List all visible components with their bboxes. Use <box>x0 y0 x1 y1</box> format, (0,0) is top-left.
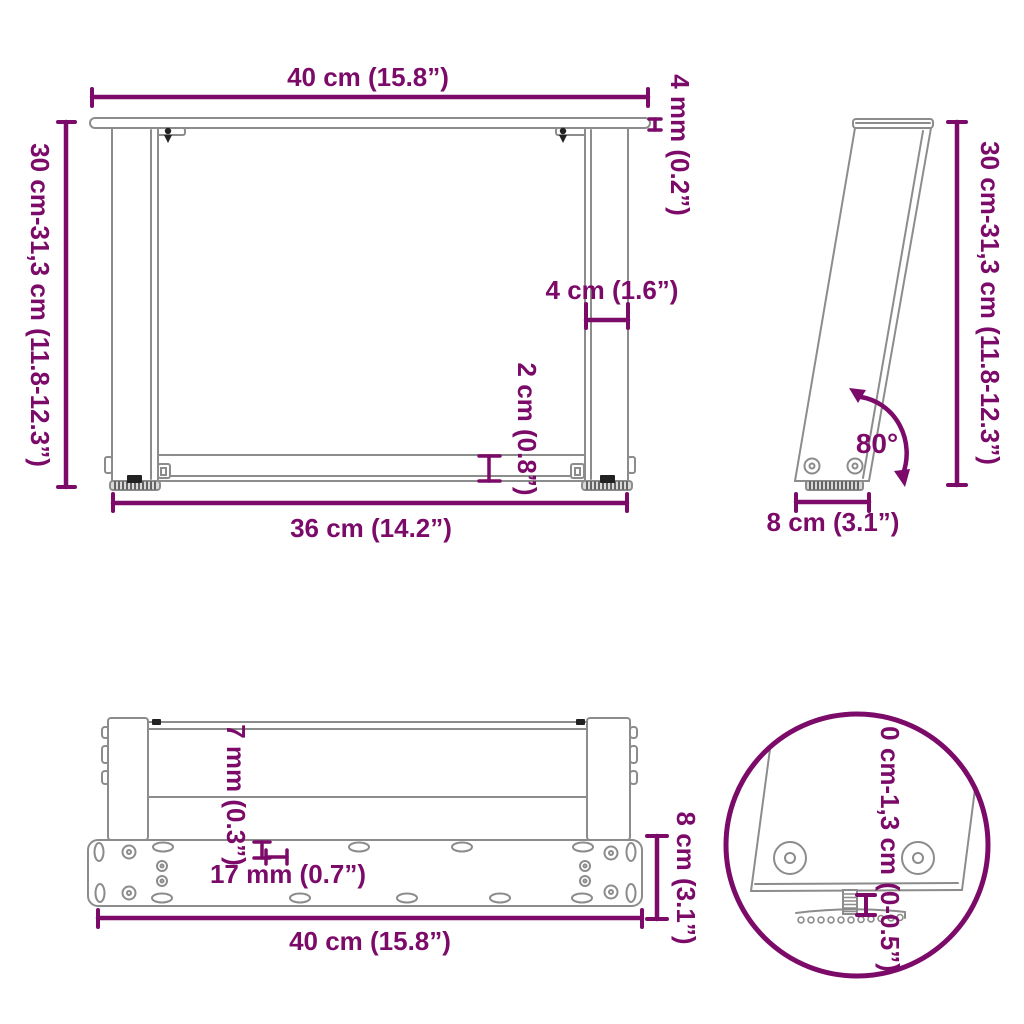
front-top-thickness-label: 4 mm (0.2”) <box>665 74 695 216</box>
detail-leg-left-edge <box>751 749 770 891</box>
detail-adjust-range-marker <box>857 895 875 915</box>
front-bottom-width-dim <box>113 494 627 511</box>
front-bottom-width-label: 36 cm (14.2”) <box>290 513 452 543</box>
front-right-foot-adjuster <box>600 475 615 483</box>
detail-leg-right-edge <box>962 789 975 890</box>
diagram-svg: 40 cm (15.8”) 30 cm-31,3 cm (11.8-12.3”)… <box>0 0 1024 1024</box>
plan-left-screw-icon <box>152 719 161 725</box>
detail-screw-hole-right <box>902 842 934 874</box>
side-screw-hole-left <box>805 459 820 474</box>
detail-magnifier-circle <box>726 714 988 976</box>
front-left-screw-icon <box>165 128 171 134</box>
plan-width-label: 40 cm (15.8”) <box>289 926 451 956</box>
angle-arrow-down-icon <box>894 469 910 487</box>
front-left-side-clip <box>105 457 112 473</box>
side-angle-label: 80° <box>856 428 898 459</box>
front-left-foot-adjuster <box>127 475 142 483</box>
dimension-diagram: 40 cm (15.8”) 30 cm-31,3 cm (11.8-12.3”)… <box>0 0 1024 1024</box>
front-right-screw-tip <box>559 135 567 143</box>
front-right-screw-icon <box>560 128 566 134</box>
side-height-dim <box>948 122 966 485</box>
plan-right-screw-icon <box>576 719 585 725</box>
front-right-side-clip <box>628 457 635 473</box>
front-height-dim <box>58 122 75 487</box>
front-bar-height-label: 2 cm (0.8”) <box>512 363 542 496</box>
detail-screw-hole-left <box>774 842 806 874</box>
front-top-width-label: 40 cm (15.8”) <box>287 62 449 92</box>
plan-width-dim <box>98 910 642 927</box>
side-screw-hole-right <box>848 459 863 474</box>
detail-adjust-range-label: 0 cm-1,3 cm (0-0.5”) <box>875 726 905 972</box>
plan-right-tab-3 <box>630 771 637 784</box>
detail-leg-inner-edge <box>755 883 958 884</box>
front-tabletop <box>90 118 650 128</box>
plan-left-leg <box>108 718 148 840</box>
plan-edge-thickness-label: 7 mm (0.3”) <box>221 724 251 866</box>
front-height-label: 30 cm-31,3 cm (11.8-12.3”) <box>25 143 55 467</box>
side-foot-width-label: 8 cm (3.1”) <box>767 507 900 537</box>
front-left-screw-tip <box>164 135 172 143</box>
front-leg-width-label: 4 cm (1.6”) <box>546 275 679 305</box>
plan-right-leg <box>587 718 630 840</box>
plan-slot-length-label: 17 mm (0.7”) <box>210 859 366 889</box>
plan-right-tab-2 <box>630 746 637 763</box>
front-foot-ribs <box>115 482 627 489</box>
plan-right-tab-1 <box>630 727 637 738</box>
side-height-label: 30 cm-31,3 cm (11.8-12.3”) <box>975 141 1005 465</box>
plan-plate-depth-label: 8 cm (3.1”) <box>671 812 701 945</box>
plan-plate-depth-dim <box>647 836 667 919</box>
